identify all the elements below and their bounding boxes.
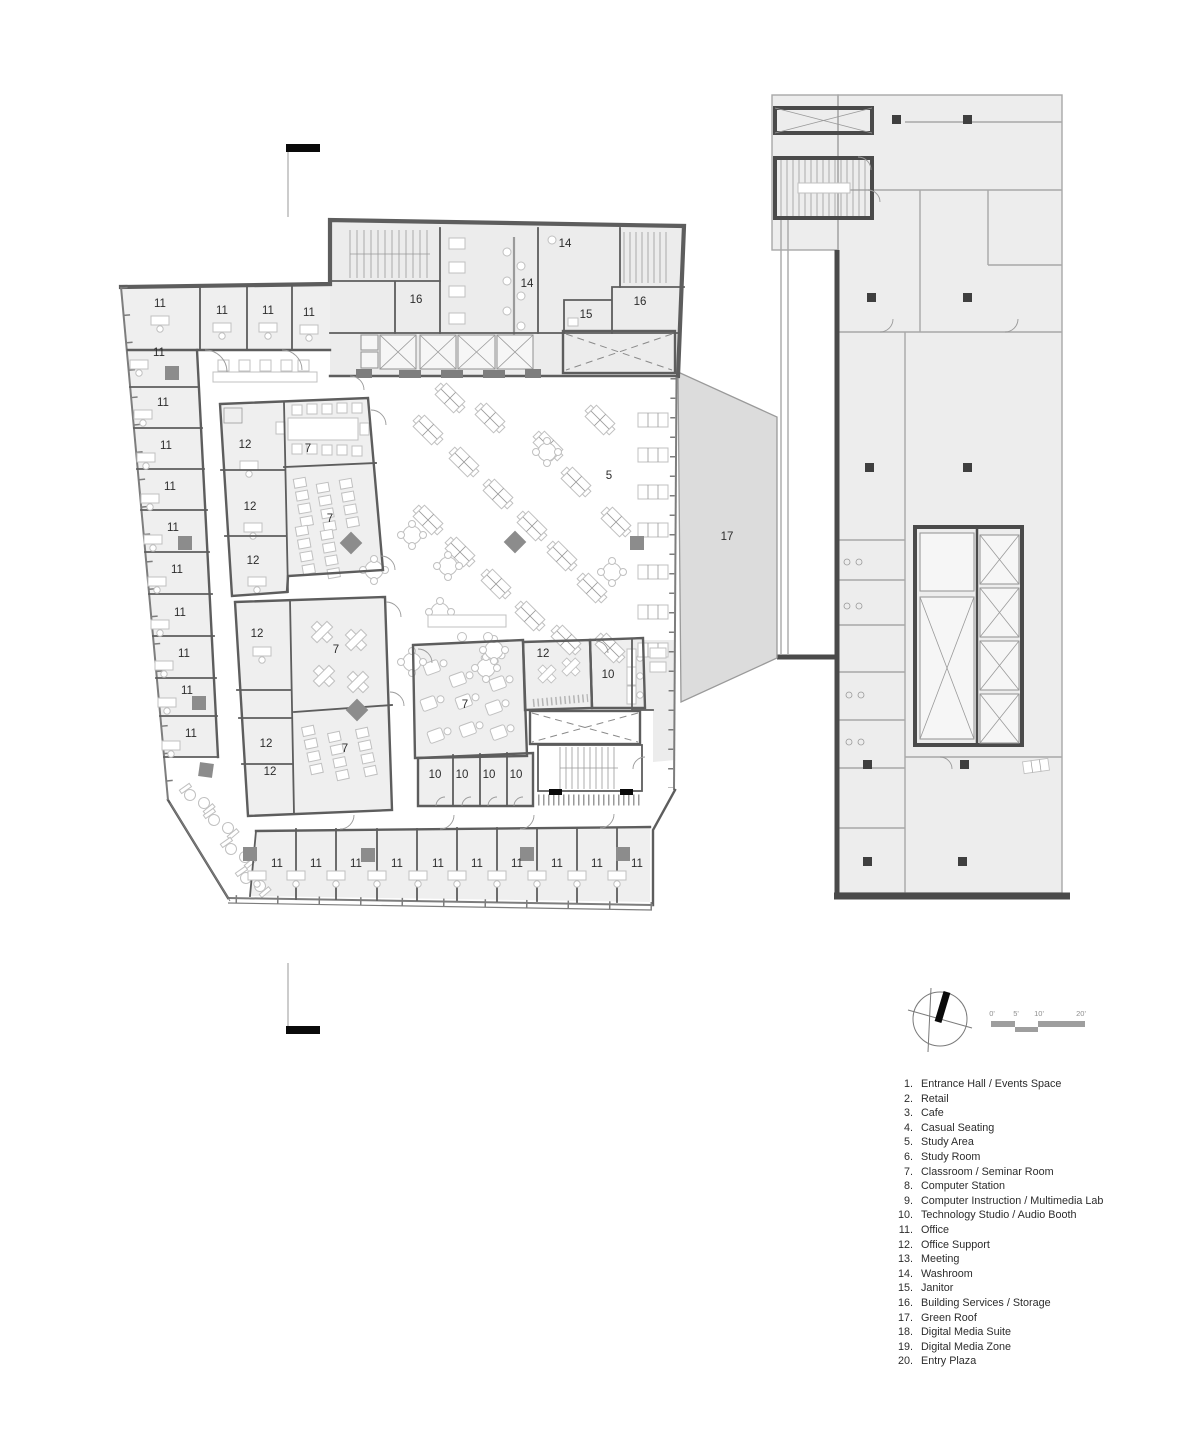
room-label-12: 12 <box>244 501 257 513</box>
legend-item: 8.Computer Station <box>893 1179 1173 1194</box>
room-label-11: 11 <box>157 397 169 409</box>
room-label-7: 7 <box>305 443 311 455</box>
room-label-12: 12 <box>260 738 273 750</box>
legend-item: 2.Retail <box>893 1092 1173 1107</box>
legend-item-label: Retail <box>921 1092 949 1107</box>
legend-item: 14.Washroom <box>893 1267 1173 1282</box>
legend-item-number: 7. <box>893 1165 913 1180</box>
legend-item: 18.Digital Media Suite <box>893 1325 1173 1340</box>
room-label-11: 11 <box>160 440 172 452</box>
legend-item-number: 2. <box>893 1092 913 1107</box>
legend-item-number: 17. <box>893 1311 913 1326</box>
room-label-11: 11 <box>167 522 179 534</box>
room-label-7: 7 <box>333 644 339 656</box>
legend-item: 11.Office <box>893 1223 1173 1238</box>
room-label-11: 11 <box>591 858 603 870</box>
legend-item: 7.Classroom / Seminar Room <box>893 1165 1173 1180</box>
legend-item-number: 3. <box>893 1106 913 1121</box>
section-marker-bottom <box>286 963 320 1034</box>
legend-item: 3.Cafe <box>893 1106 1173 1121</box>
adjacent-core <box>915 527 1022 745</box>
room-label-11: 11 <box>262 305 274 317</box>
legend-item-number: 18. <box>893 1325 913 1340</box>
legend-item-number: 10. <box>893 1208 913 1223</box>
room-legend: 1.Entrance Hall / Events Space2.Retail3.… <box>893 1077 1173 1369</box>
room-label-11: 11 <box>185 728 197 740</box>
adjacent-building <box>772 95 1070 896</box>
legend-item-label: Office <box>921 1223 949 1238</box>
legend-item-label: Washroom <box>921 1267 973 1282</box>
floor-plan-page: 0' 5' 10' 20' 11111111111111111111111111… <box>0 0 1200 1431</box>
room-label-11: 11 <box>471 858 483 870</box>
legend-item-number: 8. <box>893 1179 913 1194</box>
room-label-10: 10 <box>510 769 523 781</box>
north-arrow <box>908 988 972 1052</box>
legend-item-label: Office Support <box>921 1238 990 1253</box>
legend-item: 17.Green Roof <box>893 1311 1173 1326</box>
legend-item-label: Entry Plaza <box>921 1354 976 1369</box>
room-label-11: 11 <box>174 607 186 619</box>
legend-item: 6.Study Room <box>893 1150 1173 1165</box>
scale-tick-0: 0' <box>989 1009 995 1018</box>
legend-item-label: Meeting <box>921 1252 959 1267</box>
scale-tick-5: 5' <box>1013 1009 1019 1018</box>
legend-item-number: 13. <box>893 1252 913 1267</box>
room-label-10: 10 <box>602 669 615 681</box>
link-corridor <box>781 218 788 655</box>
room-label-12: 12 <box>239 439 252 451</box>
room-label-12: 12 <box>537 648 550 660</box>
room-label-7: 7 <box>327 513 333 525</box>
legend-item-label: Entrance Hall / Events Space <box>921 1077 1061 1092</box>
legend-item: 4.Casual Seating <box>893 1121 1173 1136</box>
legend-item-number: 19. <box>893 1340 913 1355</box>
legend-item: 10.Technology Studio / Audio Booth <box>893 1208 1173 1223</box>
room-label-11: 11 <box>164 481 176 493</box>
room-label-10: 10 <box>483 769 496 781</box>
room-label-16: 16 <box>634 296 647 308</box>
legend-item-label: Green Roof <box>921 1311 977 1326</box>
legend-item-label: Digital Media Suite <box>921 1325 1011 1340</box>
legend-item-label: Digital Media Zone <box>921 1340 1011 1355</box>
room-label-10: 10 <box>429 769 442 781</box>
section-marker-top <box>286 144 320 217</box>
room-label-11: 11 <box>350 858 362 870</box>
room-label-11: 11 <box>154 298 166 310</box>
legend-item: 15.Janitor <box>893 1281 1173 1296</box>
legend-item-label: Technology Studio / Audio Booth <box>921 1208 1076 1223</box>
room-label-11: 11 <box>631 858 643 870</box>
legend-item-label: Classroom / Seminar Room <box>921 1165 1054 1180</box>
legend-item-number: 15. <box>893 1281 913 1296</box>
room-label-11: 11 <box>181 685 193 697</box>
room-label-11: 11 <box>511 858 523 870</box>
room-label-11: 11 <box>216 305 228 317</box>
legend-item: 9.Computer Instruction / Multimedia Lab <box>893 1194 1173 1209</box>
legend-item-label: Computer Instruction / Multimedia Lab <box>921 1194 1103 1209</box>
scale-tick-20: 20' <box>1076 1009 1086 1018</box>
room-label-16: 16 <box>410 294 423 306</box>
room-label-7: 7 <box>342 743 348 755</box>
room-label-12: 12 <box>251 628 264 640</box>
legend-item-number: 9. <box>893 1194 913 1209</box>
room-label-11: 11 <box>178 648 190 660</box>
legend-item: 5.Study Area <box>893 1135 1173 1150</box>
legend-item-number: 4. <box>893 1121 913 1136</box>
room-label-11: 11 <box>310 858 322 870</box>
legend-item: 12.Office Support <box>893 1238 1173 1253</box>
room-label-17: 17 <box>721 531 734 543</box>
room-label-11: 11 <box>171 564 183 576</box>
legend-item-number: 1. <box>893 1077 913 1092</box>
scale-bar: 0' 5' 10' 20' <box>989 1009 1086 1032</box>
legend-item-number: 6. <box>893 1150 913 1165</box>
room-label-11: 11 <box>432 858 444 870</box>
legend-item-label: Janitor <box>921 1281 953 1296</box>
room-label-11: 11 <box>153 347 165 359</box>
legend-item: 19.Digital Media Zone <box>893 1340 1173 1355</box>
room-label-12: 12 <box>247 555 260 567</box>
legend-item-label: Building Services / Storage <box>921 1296 1051 1311</box>
legend-item-label: Computer Station <box>921 1179 1005 1194</box>
room-label-5: 5 <box>606 470 612 482</box>
room-label-14: 14 <box>559 238 572 250</box>
legend-item: 1.Entrance Hall / Events Space <box>893 1077 1173 1092</box>
legend-item: 16.Building Services / Storage <box>893 1296 1173 1311</box>
legend-item-label: Cafe <box>921 1106 944 1121</box>
legend-item-number: 14. <box>893 1267 913 1282</box>
legend-item: 20.Entry Plaza <box>893 1354 1173 1369</box>
room-label-15: 15 <box>580 309 593 321</box>
legend-item-label: Casual Seating <box>921 1121 994 1136</box>
legend-item-number: 20. <box>893 1354 913 1369</box>
legend-item-number: 16. <box>893 1296 913 1311</box>
legend-item-number: 5. <box>893 1135 913 1150</box>
legend-item-number: 12. <box>893 1238 913 1253</box>
legend-item-number: 11. <box>893 1223 913 1238</box>
room-label-11: 11 <box>271 858 283 870</box>
legend-item-label: Study Room <box>921 1150 980 1165</box>
legend-item: 13.Meeting <box>893 1252 1173 1267</box>
north-needle <box>938 992 947 1022</box>
room-label-11: 11 <box>551 858 563 870</box>
room-label-14: 14 <box>521 278 534 290</box>
main-building <box>121 220 684 910</box>
room-label-12: 12 <box>264 766 277 778</box>
room-label-7: 7 <box>462 699 468 711</box>
legend-item-label: Study Area <box>921 1135 974 1150</box>
room-label-11: 11 <box>303 307 315 319</box>
room-label-10: 10 <box>456 769 469 781</box>
scale-tick-10: 10' <box>1034 1009 1044 1018</box>
room-label-11: 11 <box>391 858 403 870</box>
